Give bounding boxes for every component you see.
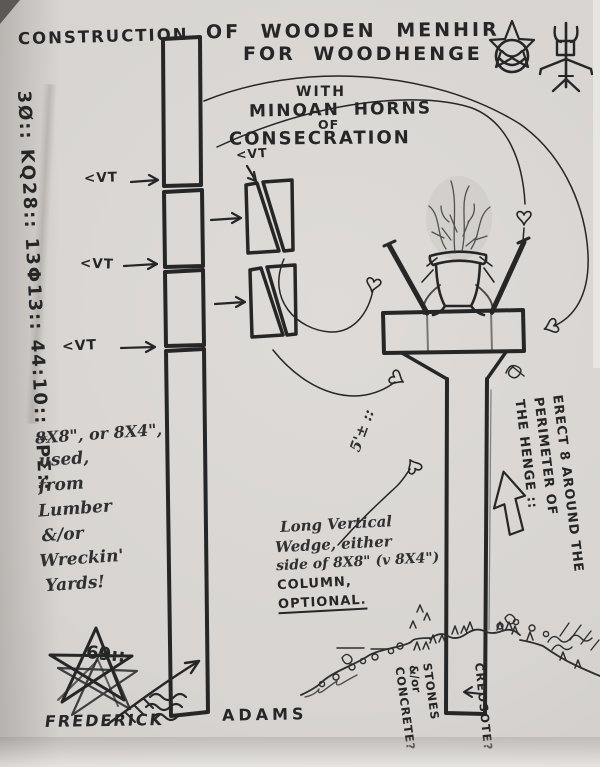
wedge-note-line: COLUMN,: [277, 570, 441, 594]
subtitle-minoan-horns: MINOAN HORNS: [249, 98, 432, 121]
detail-pointer-arrows: [211, 213, 245, 307]
scarf-joint-details: [246, 180, 296, 337]
signature-monogram: 69::: [85, 642, 126, 667]
vt-label-3: <VT: [62, 337, 98, 355]
subtitle-with: WITH: [296, 84, 346, 100]
title-line1: OF WOODEN MENHIR: [206, 19, 500, 44]
lumber-note-line: Lumber: [37, 493, 168, 522]
lumber-note: 8X8", or 8X4", used, from Lumber &/or Wr…: [34, 420, 173, 596]
lumber-note-line: from: [38, 468, 167, 497]
vt-label-2: <VT: [80, 255, 115, 272]
wedge-note: Long Vertical Wedge, either side of 8X8"…: [274, 510, 442, 614]
vt-label-1: <VT: [84, 169, 119, 186]
vt-label-detail: <VT: [236, 145, 269, 162]
lumber-note-line: &/or: [41, 518, 170, 547]
title-line2: FOR WOODHENGE: [243, 43, 483, 65]
main-column: [163, 37, 208, 716]
pentagram-sigil: [50, 628, 199, 724]
lumber-note-line: used,: [38, 443, 165, 472]
lumber-note-line: Wreckin': [39, 542, 171, 571]
signature-first-name: FREDERICK: [44, 710, 165, 731]
plant-flames-sketch: [426, 176, 492, 260]
signature-last-name: ADAMS: [222, 704, 308, 724]
offering-pot: [422, 252, 494, 315]
paper-sheet: CONSTRUCTION OF WOODEN MENHIR FOR WOODHE…: [0, 0, 600, 767]
ground-scribble: [301, 605, 600, 697]
staff-sigil: [540, 23, 592, 91]
vt-arrows: [121, 166, 256, 352]
